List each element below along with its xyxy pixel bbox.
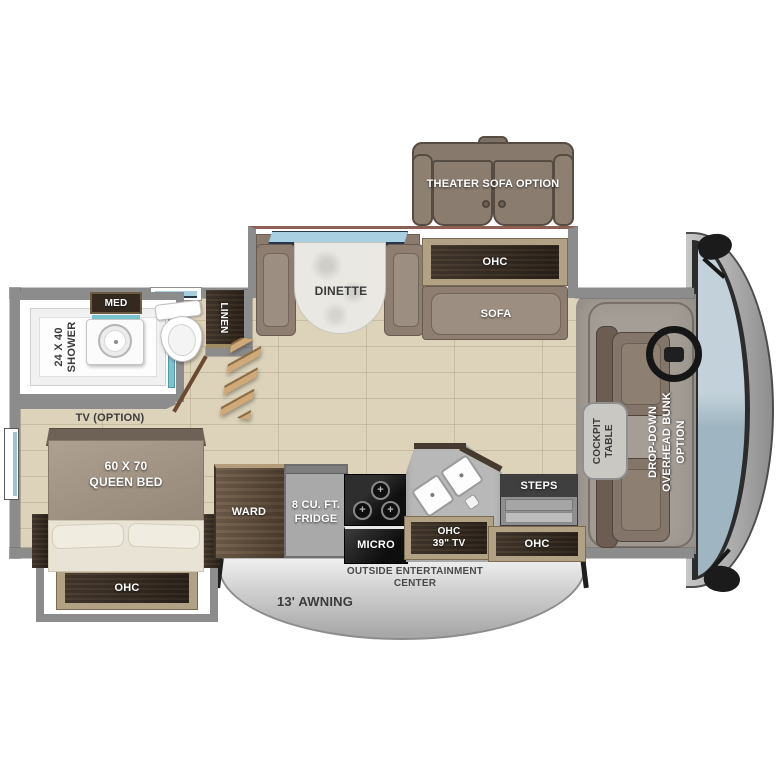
burner-icon	[381, 501, 400, 520]
fridge-label: 8 CU. FT. FRIDGE	[286, 492, 346, 532]
bed-pillow-left	[52, 523, 125, 549]
burner-icon	[353, 501, 372, 520]
microwave: MICRO	[344, 526, 408, 564]
step-tread	[505, 499, 573, 511]
cockpit-table-label: COCKPIT TABLE	[587, 406, 621, 476]
living-slideout: DINETTE OHC SOFA	[248, 226, 578, 298]
micro-label: MICRO	[345, 529, 407, 561]
bath-sink	[98, 324, 132, 358]
outside-entertainment-label: OUTSIDE ENTERTAINMENT CENTER	[330, 564, 500, 592]
entry-ohc-label: OHC	[496, 532, 578, 556]
linen-label: LINEN	[214, 293, 234, 343]
theater-sofa-label: THEATER SOFA OPTION	[412, 174, 574, 194]
tv-ohc-cabinet: OHC 39" TV	[404, 516, 494, 560]
drop-down-bunk-label: DROP-DOWN OVERHEAD BUNK OPTION	[644, 367, 692, 517]
nightstand-left	[32, 514, 48, 568]
ward-label: WARD	[216, 502, 282, 522]
awning-arm-right-icon	[580, 558, 589, 588]
bed-ohc-label: OHC	[65, 573, 189, 603]
entry-steps: STEPS	[500, 474, 578, 526]
cooktop	[344, 474, 410, 526]
window-left-wall	[4, 428, 19, 500]
cockpit-table: COCKPIT TABLE	[582, 402, 628, 480]
fridge: 8 CU. FT. FRIDGE	[284, 464, 348, 558]
med-cabinet: MED	[90, 292, 142, 314]
sofa: SOFA	[422, 286, 568, 340]
shower-label: 24 X 40 SHOWER	[48, 307, 84, 387]
queen-bed: 60 X 70 QUEEN BED	[46, 428, 206, 572]
wall-top-cab	[576, 288, 694, 298]
dinette-label: DINETTE	[276, 281, 406, 301]
theater-sofa-group: THEATER SOFA OPTION	[412, 136, 574, 228]
living-ohc-cabinet: OHC	[422, 238, 568, 286]
wardrobe: WARD	[214, 464, 284, 558]
window-left-glass	[13, 432, 17, 496]
fridge-top-vent	[286, 466, 346, 474]
cupholder-icon	[482, 200, 490, 208]
bed-pillow-right	[128, 523, 201, 549]
sofa-label: SOFA	[431, 293, 561, 335]
med-label: MED	[92, 294, 140, 312]
toilet-seat	[166, 322, 198, 357]
rv-floorplan: 13' AWNING OHC DINETTE	[0, 0, 779, 779]
sink-drain-icon	[114, 340, 118, 344]
steps-label: STEPS	[501, 475, 577, 497]
awning-label: 13' AWNING	[255, 594, 375, 609]
toilet-bowl	[158, 314, 205, 365]
living-ohc-label: OHC	[431, 245, 559, 279]
entry-ohc-cabinet: OHC	[488, 526, 586, 562]
bed-ohc-cabinet: OHC	[56, 566, 198, 610]
step-tread	[505, 512, 573, 523]
tv-option-label: TV (OPTION)	[40, 412, 180, 424]
steering-hub	[664, 347, 684, 362]
burner-icon	[371, 481, 390, 500]
bed-label: 60 X 70 QUEEN BED	[56, 452, 196, 496]
cupholder-icon	[498, 200, 506, 208]
tv-ohc-label: OHC 39" TV	[411, 522, 487, 554]
counter-trim-top	[414, 443, 466, 449]
